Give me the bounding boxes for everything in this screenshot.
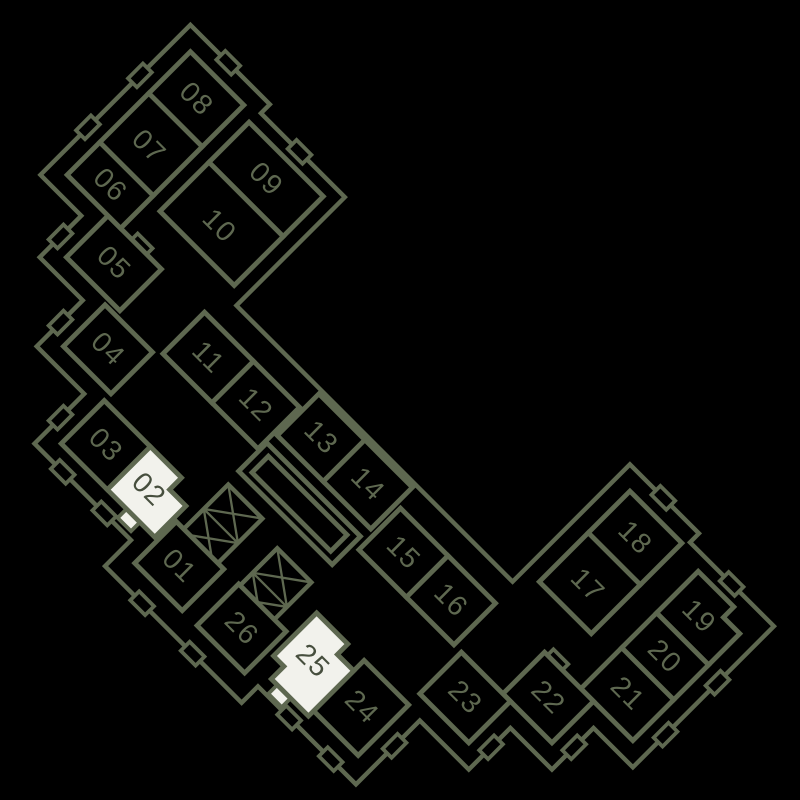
unit-22[interactable]: 22	[503, 652, 594, 743]
bay-notch	[654, 723, 678, 747]
bay-notch	[383, 734, 407, 758]
floor-plan: 0102030405060708091011121314151617181920…	[0, 0, 800, 800]
bay-notch	[51, 460, 75, 484]
bay-notch	[562, 735, 586, 759]
bay-notch	[130, 591, 154, 615]
bay-notch	[319, 747, 343, 771]
floor-plan-canvas: 0102030405060708091011121314151617181920…	[0, 0, 800, 800]
bay-notch	[288, 140, 312, 164]
plan-rotated-group: 0102030405060708091011121314151617181920…	[0, 16, 792, 800]
bay-notch	[181, 642, 205, 666]
bay-notch	[706, 671, 730, 695]
bay-notch	[92, 502, 116, 526]
bay-notch	[479, 735, 503, 759]
bay-notch	[49, 406, 73, 430]
unit-23[interactable]: 23	[420, 652, 511, 743]
unit-04[interactable]: 04	[63, 305, 152, 394]
bay-notch	[277, 706, 301, 730]
bay-notch	[216, 51, 240, 75]
bay-notch	[76, 115, 100, 139]
bay-notch	[651, 486, 675, 510]
bay-notch	[49, 225, 73, 249]
bay-notch	[128, 63, 152, 87]
bay-notch	[49, 311, 73, 335]
bay-notch	[720, 572, 744, 596]
